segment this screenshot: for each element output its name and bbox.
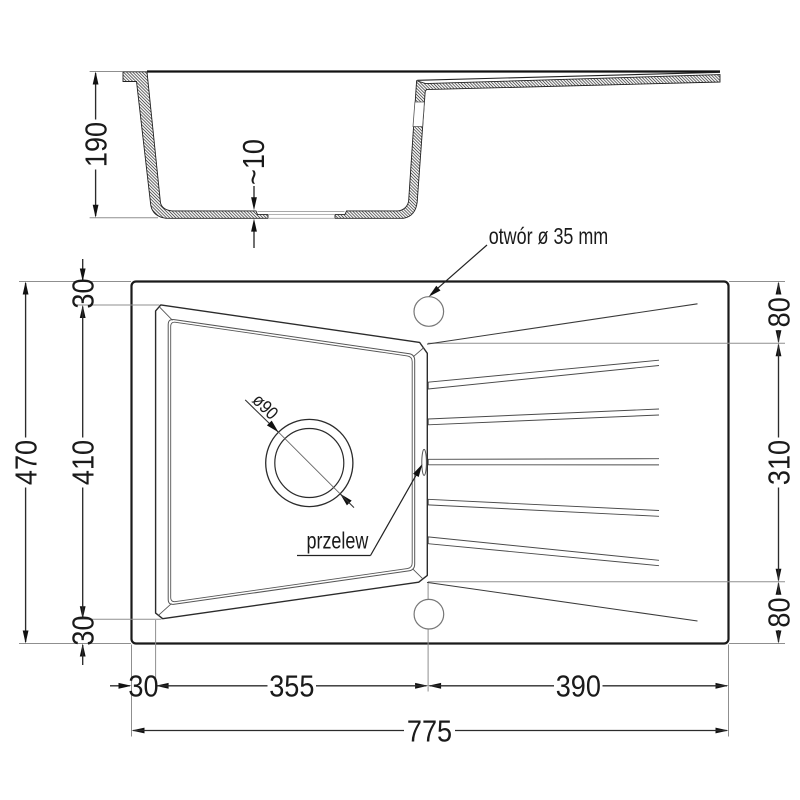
svg-text:30: 30 bbox=[128, 670, 158, 704]
svg-text:80: 80 bbox=[763, 597, 797, 627]
svg-text:30: 30 bbox=[67, 278, 101, 308]
svg-text:otwór ø 35 mm: otwór ø 35 mm bbox=[489, 224, 609, 250]
svg-text:470: 470 bbox=[10, 440, 44, 485]
svg-text:310: 310 bbox=[763, 440, 797, 485]
svg-text:30: 30 bbox=[67, 615, 101, 645]
svg-text:~10: ~10 bbox=[237, 139, 271, 185]
svg-text:80: 80 bbox=[763, 297, 797, 327]
svg-text:390: 390 bbox=[556, 670, 601, 704]
svg-text:355: 355 bbox=[269, 670, 314, 704]
svg-text:190: 190 bbox=[80, 122, 114, 167]
svg-text:775: 775 bbox=[407, 715, 452, 749]
svg-text:410: 410 bbox=[67, 440, 101, 485]
svg-text:przelew: przelew bbox=[307, 528, 369, 554]
